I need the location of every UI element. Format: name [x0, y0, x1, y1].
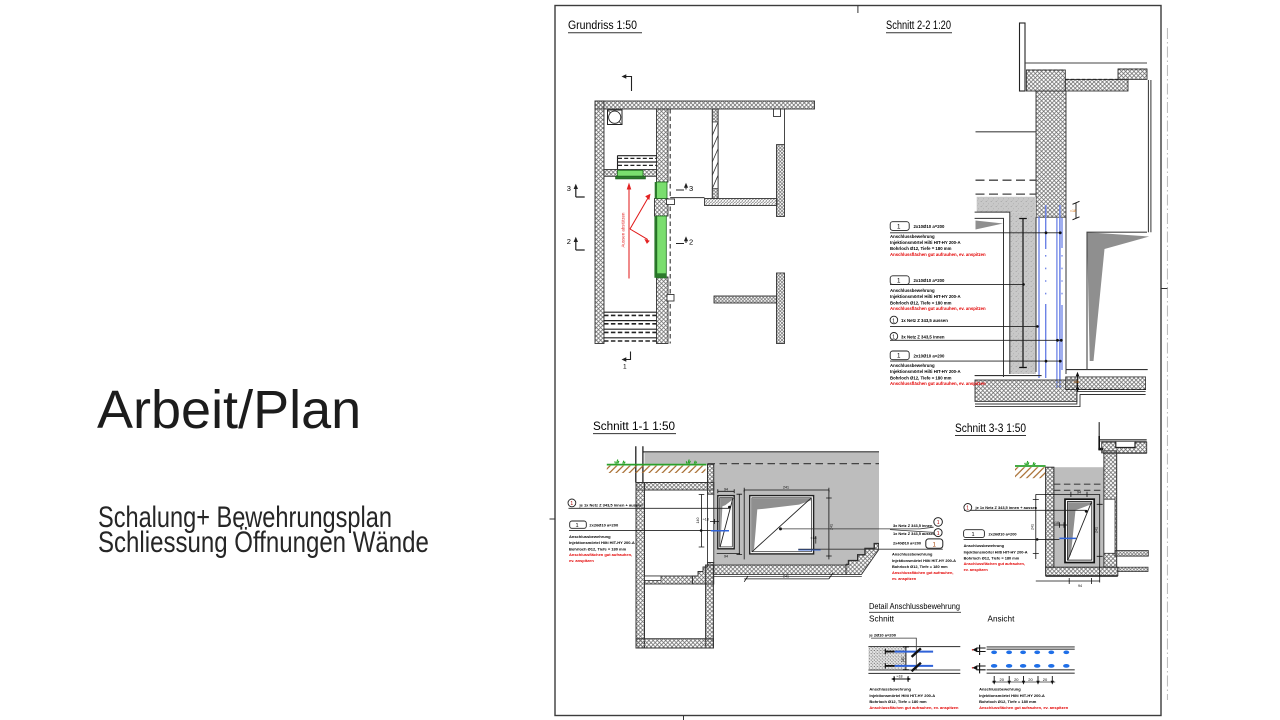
svg-text:Injektionsmörtel Hilti HIT-HY: Injektionsmörtel Hilti HIT-HY 200-A: [890, 369, 961, 374]
svg-text:Detail Anschlussbewehrung: Detail Anschlussbewehrung: [869, 601, 960, 611]
svg-text:241: 241: [783, 485, 789, 489]
svg-text:1x Netz Z 343,5 aussen: 1x Netz Z 343,5 aussen: [901, 318, 948, 323]
svg-text:1: 1: [937, 531, 940, 537]
svg-text:Ansicht: Ansicht: [988, 615, 1016, 624]
svg-text:Anschlussbewehrung: Anschlussbewehrung: [979, 687, 1021, 692]
svg-text:je 1x Netz Z 343,5 innen + aus: je 1x Netz Z 343,5 innen + aussen: [975, 505, 1038, 510]
svg-text:2x26Ø10 a=200: 2x26Ø10 a=200: [589, 523, 619, 528]
svg-text:Bohrloch Ø12, Tiefe = 180 mm: Bohrloch Ø12, Tiefe = 180 mm: [890, 375, 952, 380]
svg-text:Injektionsmörtel Hilti HIT-HY: Injektionsmörtel Hilti HIT-HY 200-A: [979, 693, 1045, 698]
svg-text:1: 1: [576, 523, 579, 529]
svg-text:1: 1: [897, 278, 901, 285]
svg-text:3x Netz Z 343,5 innen: 3x Netz Z 343,5 innen: [893, 523, 933, 528]
svg-text:Injektionsmörtel Hilti HIT-HY: Injektionsmörtel Hilti HIT-HY 200-A: [869, 693, 935, 698]
svg-text:2x10Ø10 a=200: 2x10Ø10 a=200: [914, 224, 946, 229]
svg-text:1: 1: [972, 532, 975, 538]
svg-text:Injektionsmörtel Hilti HIT-HY: Injektionsmörtel Hilti HIT-HY 200-A: [569, 540, 635, 545]
svg-text:1: 1: [892, 335, 895, 341]
svg-text:Schnitt 2-2 1:20: Schnitt 2-2 1:20: [886, 20, 951, 32]
svg-text:Anschlussflächen gut aufrauhen: Anschlussflächen gut aufrauhen,: [892, 570, 953, 575]
svg-text:94: 94: [724, 554, 728, 558]
svg-text:Injektionsmörtel Hilti HIT-HY: Injektionsmörtel Hilti HIT-HY 200-A: [890, 294, 961, 299]
svg-text:2x10Ø10 a=200: 2x10Ø10 a=200: [914, 353, 946, 358]
svg-text:≈18: ≈18: [897, 675, 903, 679]
svg-text:≈18: ≈18: [1070, 209, 1076, 213]
svg-text:3: 3: [689, 184, 693, 193]
svg-text:Injektionsmörtel Hilti HIT-HY: Injektionsmörtel Hilti HIT-HY 200-A: [890, 240, 961, 245]
svg-text:2x10Ø10 a=200: 2x10Ø10 a=200: [914, 278, 946, 283]
svg-text:Anschlussflächen gut aufrauhen: Anschlussflächen gut aufrauhen,: [964, 561, 1025, 566]
svg-text:Schnitt: Schnitt: [869, 615, 895, 624]
svg-text:Anschlussflächen gut aufrauhen: Anschlussflächen gut aufrauhen,: [569, 552, 632, 557]
svg-text:Schnitt 3-3 1:50: Schnitt 3-3 1:50: [955, 423, 1026, 435]
svg-text:1: 1: [937, 520, 940, 526]
svg-text:Anschlussbewehrung: Anschlussbewehrung: [890, 234, 935, 239]
svg-text:Grundriss 1:50: Grundriss 1:50: [568, 20, 637, 32]
svg-text:1: 1: [623, 364, 627, 371]
svg-text:94: 94: [1077, 490, 1081, 494]
svg-text:≈18: ≈18: [703, 517, 709, 521]
svg-text:20: 20: [1014, 677, 1019, 682]
svg-text:20: 20: [1043, 677, 1048, 682]
svg-text:Bohrloch Ø12, Tiefe = 180 mm: Bohrloch Ø12, Tiefe = 180 mm: [569, 546, 627, 551]
svg-text:≈18: ≈18: [1053, 521, 1059, 525]
svg-text:≈18: ≈18: [811, 536, 817, 540]
svg-text:Bohrloch Ø12, Tiefe = 180 mm: Bohrloch Ø12, Tiefe = 180 mm: [892, 564, 948, 569]
svg-text:94: 94: [1078, 584, 1082, 588]
svg-text:Anschlussbewehrung: Anschlussbewehrung: [890, 363, 935, 368]
svg-text:1: 1: [966, 506, 969, 512]
svg-text:Injektionsmörtel Hilti HIT-HY: Injektionsmörtel Hilti HIT-HY 200-A: [892, 558, 956, 563]
svg-text:1: 1: [892, 318, 895, 324]
svg-text:Anschlussbewehrung: Anschlussbewehrung: [890, 288, 935, 293]
svg-text:Bohrloch Ø12, Tiefe = 180 mm: Bohrloch Ø12, Tiefe = 180 mm: [890, 246, 952, 251]
svg-text:Bohrloch Ø12, Tiefe = 180 mm: Bohrloch Ø12, Tiefe = 180 mm: [869, 699, 927, 704]
svg-text:Anschlussflächen gut aufrauhen: Anschlussflächen gut aufrauhen, ev. ansp…: [890, 252, 986, 257]
svg-text:2x26Ø10 a=200: 2x26Ø10 a=200: [989, 532, 1017, 537]
svg-text:1: 1: [570, 501, 573, 507]
svg-text:20: 20: [1028, 677, 1033, 682]
svg-text:Anschlussbewehrung: Anschlussbewehrung: [964, 543, 1005, 548]
svg-text:Schnitt 1-1 1:50: Schnitt 1-1 1:50: [593, 421, 675, 433]
svg-text:2: 2: [567, 237, 571, 246]
svg-text:180: 180: [901, 657, 905, 663]
svg-text:Bohrloch Ø12, Tiefe = 180 mm: Bohrloch Ø12, Tiefe = 180 mm: [890, 300, 952, 305]
svg-text:ev. anspitzen: ev. anspitzen: [569, 558, 594, 563]
svg-text:241: 241: [1094, 527, 1098, 533]
svg-text:2x40Ø10 a=200: 2x40Ø10 a=200: [893, 540, 921, 545]
svg-text:Anschlussflächen gut aufrauhen: Anschlussflächen gut aufrauhen, ev. ansp…: [869, 705, 959, 710]
svg-text:94: 94: [724, 487, 728, 491]
svg-text:140: 140: [696, 518, 700, 524]
svg-text:ev. anspitzen: ev. anspitzen: [892, 576, 917, 581]
svg-text:Anschlussbewehrung: Anschlussbewehrung: [892, 552, 933, 557]
svg-text:1: 1: [897, 223, 901, 230]
svg-text:Bohrloch Ø12, Tiefe = 180 mm: Bohrloch Ø12, Tiefe = 180 mm: [964, 556, 1020, 561]
svg-text:ev. anspitzen: ev. anspitzen: [964, 567, 989, 572]
svg-text:241: 241: [1030, 524, 1034, 530]
svg-text:20: 20: [999, 677, 1004, 682]
svg-text:3: 3: [567, 184, 571, 193]
svg-text:Anschlussflächen gut aufrauhen: Anschlussflächen gut aufrauhen, ev. ansp…: [890, 306, 986, 311]
svg-text:Anschlussbewehrung: Anschlussbewehrung: [869, 687, 911, 692]
svg-text:≈18: ≈18: [1073, 380, 1079, 384]
svg-text:je 1x Netz Z 343,5 innen + aus: je 1x Netz Z 343,5 innen + aussen: [579, 502, 644, 507]
svg-text:2: 2: [689, 238, 693, 247]
svg-text:Aussen abstützen: Aussen abstützen: [621, 212, 626, 247]
svg-text:1: 1: [933, 541, 937, 548]
svg-text:Injektionsmörtel Hilti HIT-HY: Injektionsmörtel Hilti HIT-HY 200-A: [964, 549, 1028, 554]
svg-text:1: 1: [897, 353, 901, 360]
svg-text:3x Netz Z 343,5 innen: 3x Netz Z 343,5 innen: [901, 334, 945, 339]
svg-text:241: 241: [783, 574, 789, 578]
svg-text:Anschlussbewehrung: Anschlussbewehrung: [569, 534, 611, 539]
svg-text:1x Netz Z 343,5 aussen: 1x Netz Z 343,5 aussen: [893, 531, 936, 536]
svg-text:Bohrloch Ø12, Tiefe = 180 mm: Bohrloch Ø12, Tiefe = 180 mm: [979, 699, 1037, 704]
svg-text:Anschlussflächen gut aufrauhen: Anschlussflächen gut aufrauhen, ev. ansp…: [890, 381, 986, 386]
svg-text:Anschlussflächen gut aufrauhen: Anschlussflächen gut aufrauhen, ev. ansp…: [979, 705, 1069, 710]
svg-text:je 2Ø10 a=200: je 2Ø10 a=200: [868, 632, 896, 637]
